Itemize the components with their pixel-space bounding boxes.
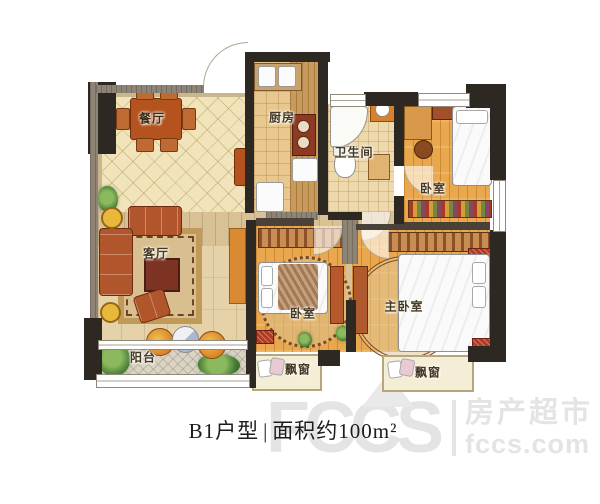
bay-cushion bbox=[269, 357, 286, 376]
bed-throw bbox=[278, 264, 318, 310]
tv-cabinet bbox=[229, 228, 246, 304]
wall-segment bbox=[404, 222, 490, 228]
room-label-kitchen: 厨房 bbox=[269, 109, 295, 126]
window bbox=[418, 93, 470, 107]
bay-cushion bbox=[399, 358, 416, 377]
wall-segment bbox=[346, 300, 356, 352]
kitchen-sink bbox=[278, 66, 296, 87]
wall-segment bbox=[468, 346, 506, 362]
coffee-table bbox=[144, 258, 180, 292]
room-label-bedroom-middle: 卧室 bbox=[290, 305, 316, 322]
balcony-plant bbox=[198, 354, 240, 376]
stove-burner bbox=[297, 120, 310, 133]
wall-segment bbox=[394, 104, 404, 166]
dishwasher bbox=[292, 158, 318, 182]
desk bbox=[404, 106, 432, 140]
balcony-slider bbox=[98, 340, 248, 350]
window bbox=[330, 94, 366, 107]
room-label-bay-left: 飘窗 bbox=[285, 361, 311, 378]
unit-area: 面积约100m² bbox=[272, 419, 397, 443]
dining-chair bbox=[160, 138, 178, 152]
wall-segment bbox=[246, 220, 256, 388]
room-label-bay-right: 飘窗 bbox=[415, 364, 441, 381]
room-label-living: 客厅 bbox=[143, 245, 169, 262]
bed-pillow bbox=[261, 288, 273, 308]
fridge bbox=[256, 182, 284, 212]
wall-segment bbox=[318, 55, 328, 215]
sofa-chaise bbox=[99, 228, 133, 296]
wall-segment bbox=[245, 62, 254, 213]
unit-type: B1户型 bbox=[189, 419, 260, 443]
entry-door-arc bbox=[203, 42, 248, 87]
bed-pillow bbox=[456, 110, 488, 124]
dining-chair bbox=[182, 108, 196, 130]
stove-burner bbox=[297, 136, 310, 149]
wall-segment bbox=[328, 212, 362, 220]
room-label-balcony: 阳台 bbox=[130, 349, 156, 366]
balcony-window bbox=[96, 374, 250, 388]
plan-caption: B1户型|面积约100m² bbox=[0, 415, 586, 445]
bedroom-bench bbox=[330, 266, 344, 324]
dining-chair bbox=[116, 108, 130, 130]
room-label-master: 主卧室 bbox=[384, 298, 423, 315]
wall-segment bbox=[256, 218, 314, 226]
window bbox=[493, 180, 506, 232]
wall-segment bbox=[490, 106, 506, 180]
sofa-three-seat bbox=[128, 206, 182, 236]
caption-divider: | bbox=[259, 419, 272, 443]
room-label-bathroom: 卫生间 bbox=[334, 144, 373, 161]
room-label-bedroom-top: 卧室 bbox=[420, 180, 446, 197]
wall-segment bbox=[318, 350, 340, 366]
wall-segment bbox=[96, 85, 204, 93]
bed-pillow bbox=[261, 266, 273, 286]
bookshelf bbox=[408, 200, 492, 218]
wall-segment bbox=[394, 196, 404, 226]
desk-chair bbox=[414, 140, 433, 159]
kitchen-sink bbox=[258, 66, 276, 87]
floor-lamp bbox=[101, 207, 123, 229]
small-plant bbox=[298, 332, 312, 347]
bed-pillow bbox=[472, 286, 486, 308]
wall-segment bbox=[364, 92, 398, 106]
wall-segment bbox=[466, 84, 506, 108]
room-label-dining: 餐厅 bbox=[139, 110, 165, 127]
small-mat bbox=[256, 330, 274, 344]
dining-chair bbox=[136, 138, 154, 152]
floorplan-image: FCCS 房产超市 fccs.com bbox=[0, 0, 600, 504]
floor-lamp bbox=[100, 302, 121, 323]
bed-pillow bbox=[472, 262, 486, 284]
wall-segment bbox=[490, 230, 506, 352]
